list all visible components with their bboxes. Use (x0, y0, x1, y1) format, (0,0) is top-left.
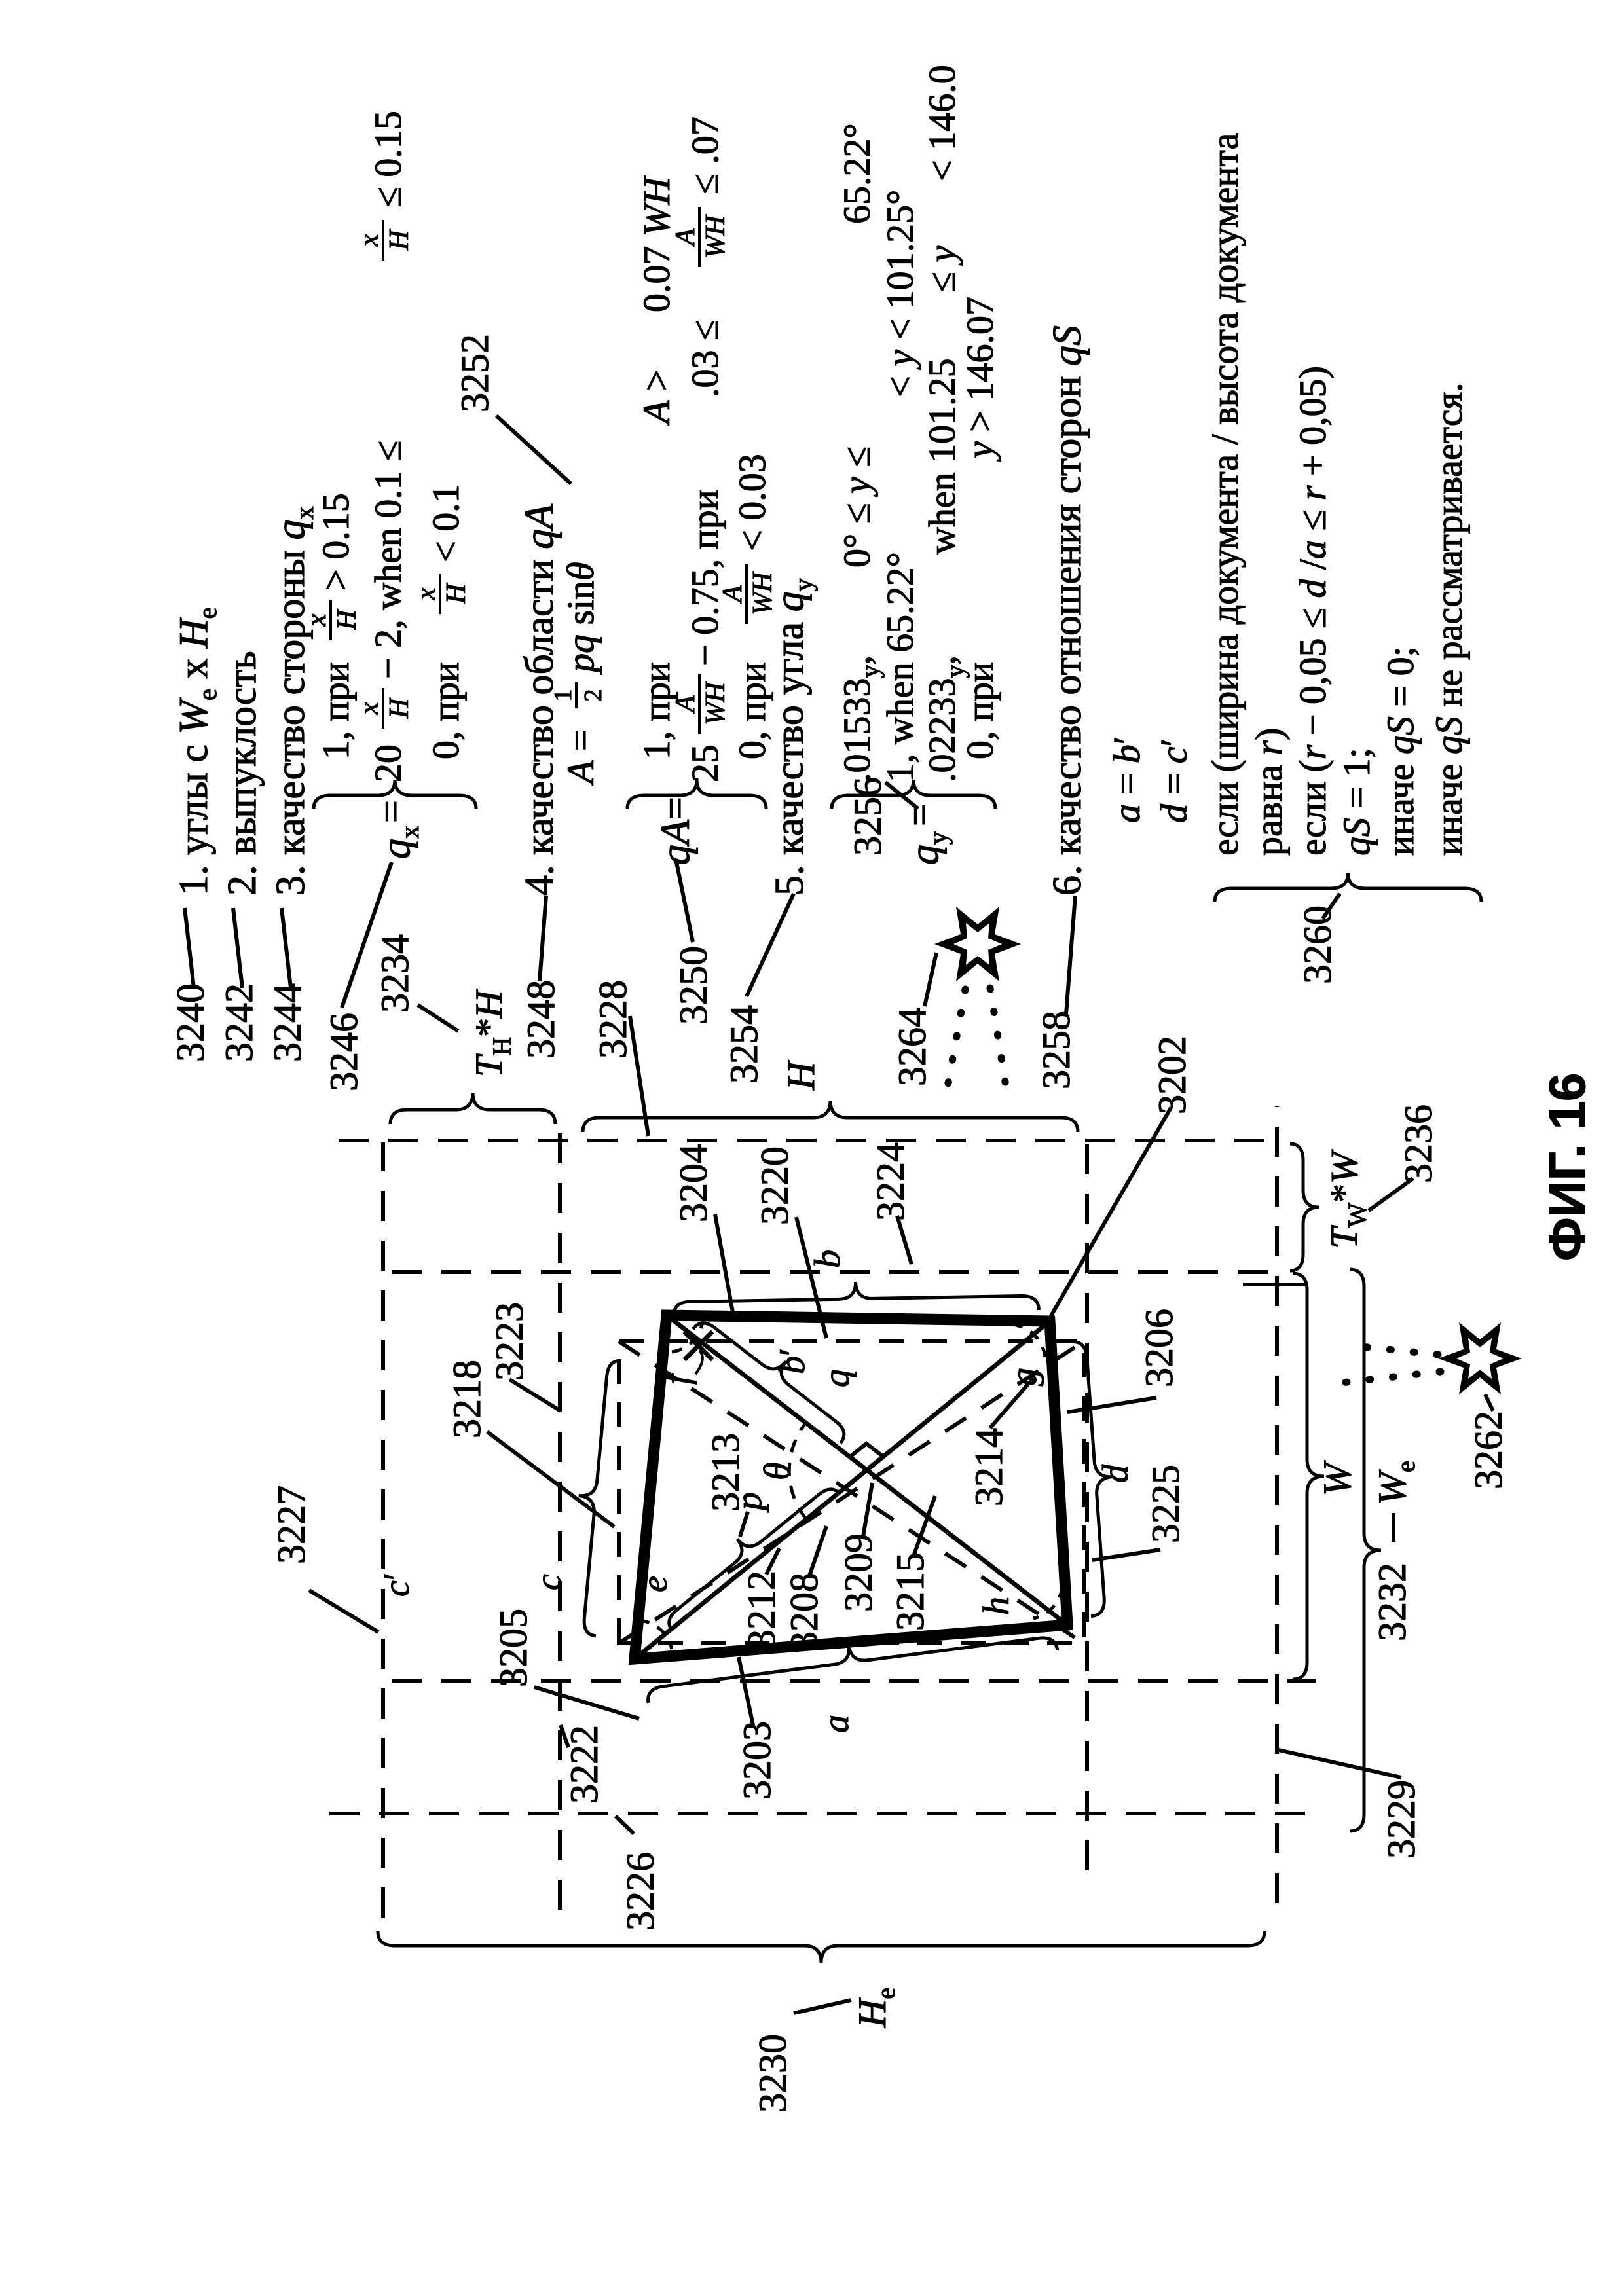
svg-text:A: A (671, 695, 701, 714)
svg-text:TW​*W: TW​*W (1323, 1149, 1372, 1248)
svg-text:иначе qS не рассматривается.: иначе qS не рассматривается. (1428, 382, 1470, 856)
svg-text:0, при: 0, при (959, 662, 1001, 759)
svg-text:3250: 3250 (672, 946, 715, 1025)
svg-text:.03 ≤: .03 ≤ (684, 319, 726, 397)
svg-text:≤ 0.15: ≤ 0.15 (367, 111, 409, 208)
svg-text:WH: WH (701, 214, 731, 259)
svg-text:d = c′: d = c′ (1153, 738, 1195, 823)
svg-text:pq sinθ: pq sinθ (559, 562, 602, 675)
svg-text:3230: 3230 (751, 2034, 794, 2113)
svg-text:− 2, when 0.1 ≤: − 2, when 0.1 ≤ (367, 441, 409, 679)
svg-text:3218: 3218 (445, 1360, 489, 1438)
svg-text:a: a (816, 1715, 857, 1733)
svg-text:3232: 3232 (1371, 1563, 1414, 1641)
svg-text:b′: b′ (772, 1348, 813, 1374)
svg-text:3258: 3258 (1035, 1011, 1078, 1089)
svg-text:3226: 3226 (619, 1852, 662, 1931)
svg-text:3203: 3203 (735, 1721, 779, 1800)
svg-text:3262: 3262 (1467, 1411, 1510, 1489)
svg-text:< 0.03: < 0.03 (731, 454, 773, 551)
svg-text:He​: He​ (851, 1988, 900, 2028)
svg-text:x: x (354, 234, 384, 247)
svg-text:2. выпуклость: 2. выпуклость (220, 651, 265, 896)
svg-text:3208: 3208 (783, 1573, 826, 1651)
svg-text:3228: 3228 (591, 980, 635, 1059)
svg-text:3256: 3256 (846, 777, 889, 856)
svg-text:3220: 3220 (753, 1146, 796, 1225)
svg-text:qS = 1;: qS = 1; (1335, 748, 1378, 856)
svg-text:x: x (354, 702, 384, 715)
svg-text:3254: 3254 (722, 1005, 766, 1084)
svg-text:3260: 3260 (1296, 905, 1339, 984)
svg-text:b: b (807, 1250, 848, 1268)
svg-text:3206: 3206 (1137, 1309, 1181, 1387)
svg-text:3246: 3246 (322, 1013, 365, 1091)
svg-text:равна r): равна r) (1247, 728, 1290, 856)
svg-text:A =: A = (559, 729, 602, 786)
svg-text:5. качество угла qy​: 5. качество угла qy​ (767, 578, 818, 896)
svg-text:c: c (528, 1574, 569, 1590)
svg-text:d: d (1096, 1464, 1136, 1483)
svg-text:3. качество стороны qx​: 3. качество стороны qx​ (268, 506, 319, 896)
svg-text:3202: 3202 (1151, 1036, 1194, 1114)
svg-text:1, при: 1, при (314, 662, 357, 759)
svg-text:< y < 101.25°: < y < 101.25° (879, 190, 921, 397)
svg-text:если (r − 0,05 ≤ d /a ≤ r + 0,: если (r − 0,05 ≤ d /a ≤ r + 0,05) (1291, 366, 1334, 856)
svg-text:=: = (369, 800, 414, 823)
svg-text:65.22°: 65.22° (836, 123, 878, 224)
svg-text:p: p (729, 1492, 769, 1513)
svg-text:3212: 3212 (740, 1571, 783, 1649)
svg-text:3223: 3223 (488, 1302, 531, 1381)
svg-text:3215: 3215 (889, 1552, 932, 1631)
svg-text:3204: 3204 (672, 1144, 715, 1222)
svg-text:x: x (302, 613, 332, 627)
svg-text:3227: 3227 (270, 1485, 313, 1564)
svg-text:qy​: qy​ (902, 831, 953, 865)
svg-text:q: q (817, 1369, 857, 1387)
svg-text:3240: 3240 (169, 983, 212, 1062)
svg-text:W: W (1316, 1460, 1359, 1496)
svg-text:3205: 3205 (492, 1609, 535, 1687)
svg-text:≤ y: ≤ y (921, 246, 963, 293)
svg-text:3225: 3225 (1144, 1465, 1187, 1543)
svg-text:.01533y​,: .01533y​, (836, 655, 885, 782)
svg-text:a = b′: a = b′ (1105, 737, 1148, 823)
svg-text:> 0.15: > 0.15 (314, 493, 357, 591)
svg-text:H: H (779, 1059, 822, 1091)
svg-text:3244: 3244 (266, 983, 309, 1062)
svg-text:qx​: qx​ (374, 826, 424, 859)
svg-text:< 146.0: < 146.0 (921, 65, 963, 181)
svg-text:3229: 3229 (1380, 1780, 1423, 1859)
svg-text:1, when 65.22°: 1, when 65.22° (879, 552, 921, 782)
svg-text:3252: 3252 (453, 334, 496, 412)
svg-text:− 0.75, при: − 0.75, при (684, 490, 726, 666)
svg-text:3248: 3248 (519, 980, 563, 1059)
svg-text:если (ширина документа / высот: если (ширина документа / высота документ… (1204, 133, 1246, 856)
svg-text:3209: 3209 (837, 1533, 880, 1612)
svg-text:3224: 3224 (869, 1142, 912, 1221)
svg-text:H: H (441, 582, 471, 604)
svg-text:=: = (898, 803, 942, 826)
svg-text:WH: WH (701, 681, 731, 725)
svg-text:25: 25 (684, 744, 726, 782)
svg-text:h: h (976, 1597, 1017, 1615)
svg-text:A: A (718, 585, 748, 604)
svg-text:< 0.1: < 0.1 (424, 484, 467, 562)
svg-text:3234: 3234 (373, 934, 416, 1013)
svg-text:3222: 3222 (563, 1725, 606, 1804)
svg-text:y > 146.07: y > 146.07 (959, 297, 1001, 462)
svg-text:g: g (1004, 1368, 1044, 1386)
svg-text:x: x (411, 587, 441, 600)
svg-text:1: 1 (549, 689, 577, 702)
svg-text:We​: We​ (1371, 1461, 1420, 1505)
svg-text:3264: 3264 (891, 1008, 934, 1086)
svg-text:1. углы с We​ x He​: 1. углы с We​ x He​ (172, 608, 222, 896)
svg-text:20: 20 (367, 744, 409, 782)
svg-text:H: H (384, 228, 415, 251)
svg-text:e: e (635, 1576, 675, 1592)
svg-text:ФИГ. 16: ФИГ. 16 (1538, 1073, 1596, 1261)
svg-text:H: H (384, 697, 415, 719)
svg-text:TH​*H: TH​*H (468, 989, 517, 1077)
svg-text:6. качество отношения сторон q: 6. качество отношения сторон qS (1045, 325, 1090, 896)
svg-text:2: 2 (580, 689, 607, 702)
svg-text:c′: c′ (377, 1573, 417, 1597)
svg-text:qA=: qA= (654, 797, 698, 865)
svg-text:θ: θ (757, 1462, 798, 1480)
svg-text:3242: 3242 (217, 983, 261, 1062)
svg-text:A: A (671, 228, 701, 247)
svg-text:≤ .07: ≤ .07 (684, 117, 726, 194)
svg-text:3236: 3236 (1397, 1104, 1440, 1183)
svg-text:0° ≤ y ≤: 0° ≤ y ≤ (836, 446, 878, 568)
svg-text:A >: A > (635, 369, 678, 426)
svg-text:H: H (332, 608, 362, 630)
svg-text:when 101.25: when 101.25 (921, 358, 963, 555)
svg-text:иначе qS = 0;: иначе qS = 0; (1379, 646, 1422, 856)
svg-text:3214: 3214 (967, 1428, 1010, 1506)
svg-text:0, при: 0, при (424, 662, 467, 759)
